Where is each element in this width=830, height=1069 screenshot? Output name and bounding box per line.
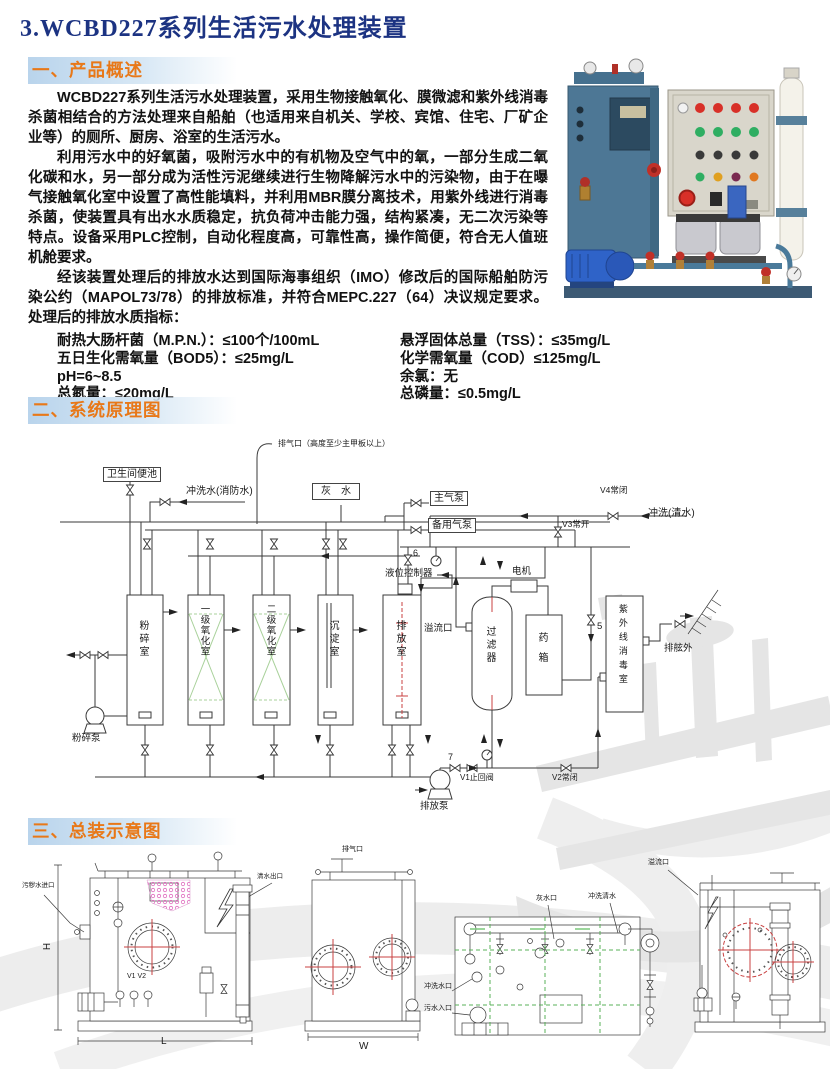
sewage-inlet-port-label: 污水入口 — [424, 1005, 452, 1013]
gray-water-label: 灰 水 — [312, 483, 360, 500]
backup-air-pump-label: 备用气泵 — [428, 518, 476, 533]
valve-5-label: 5 — [597, 622, 602, 632]
valve-v4-label: V4常闭 — [600, 486, 627, 495]
specs-right-column: 悬浮固体总量（TSS）：≤35mg/L 化学需氧量（COD）≤125mg/L 余… — [400, 333, 808, 404]
sewage-inlet-label: 污秽水进口 — [22, 882, 55, 889]
product-overview: WCBD227系列生活污水处理装置，采用生物接触氧化、膜微滤和紫外线消毒杀菌相结… — [28, 88, 548, 328]
spec-line: 五日生化需氧量（BOD5）：≤25mg/L — [57, 351, 400, 369]
assembly-drawings: H L W 污秽水进口 清水出口 V1 V2 排气口 灰水口 冲洗清水 冲洗水口… — [0, 845, 830, 1069]
section-heading-assembly: 三、总装示意图 — [28, 818, 237, 845]
uv-chamber-label: 紫外线消毒室 — [617, 604, 627, 688]
overview-paragraph: 利用污水中的好氧菌，吸附污水中的有机物及空气中的氧，一部分生成二氧化碳和水，另一… — [28, 148, 548, 268]
valve-v3-label: V3常开 — [562, 520, 589, 529]
flush-water-port-label: 冲洗水口 — [424, 983, 452, 991]
toilet-label: 卫生间便池 — [103, 467, 161, 482]
spec-line: 悬浮固体总量（TSS）：≤35mg/L — [400, 333, 808, 351]
product-photo — [550, 58, 828, 302]
vent-label: 排气口（高度至少主甲板以上） — [278, 440, 390, 449]
flush-clean-water-label: 冲洗(清水) — [648, 508, 695, 519]
assembly-linework — [0, 845, 830, 1069]
dosing-box-label: 药箱 — [536, 632, 547, 672]
overflow-port-label: 溢流口 — [424, 624, 453, 634]
section-heading-overview: 一、产品概述 — [28, 57, 237, 84]
main-air-pump-label: 主气泵 — [430, 491, 468, 506]
motor-label: 电机 — [512, 567, 531, 577]
filter-label: 过滤器 — [484, 626, 495, 665]
oxidation2-chamber-label: 二级氧化室 — [264, 604, 274, 657]
gray-water-port-label: 灰水口 — [536, 895, 557, 903]
discharge-chamber-label: 排放室 — [394, 620, 405, 659]
spec-line: pH=6~8.5 — [57, 369, 400, 387]
valve-v2-label: V2常闭 — [552, 774, 578, 783]
spec-line: 总磷量：≤0.5mg/L — [400, 386, 808, 404]
specs-left-column: 耐热大肠杆菌（M.P.N.）：≤100个/100mL 五日生化需氧量（BOD5）… — [28, 333, 400, 404]
section-heading-schematic: 二、系统原理图 — [28, 397, 237, 424]
catalog-page: { "page_title": "3.WCBD227系列生活污水处理装置", "… — [0, 0, 830, 1069]
valve-v1-label: V1止回阀 — [460, 774, 494, 783]
overview-paragraph: 经该装置处理后的排放水达到国际海事组织（IMO）修改后的国际船舶防污染公约（MA… — [28, 268, 548, 328]
page-title: 3.WCBD227系列生活污水处理装置 — [20, 8, 408, 43]
overboard-label: 排舷外 — [664, 644, 693, 654]
flush-clean-water-label: 冲洗清水 — [588, 893, 616, 901]
dimension-w-label: W — [359, 1041, 368, 1052]
overflow-port-label: 溢流口 — [648, 859, 669, 867]
discharge-quality-specs: 耐热大肠杆菌（M.P.N.）：≤100个/100mL 五日生化需氧量（BOD5）… — [28, 333, 808, 404]
dimension-h-label: H — [42, 943, 53, 950]
spec-line: 耐热大肠杆菌（M.P.N.）：≤100个/100mL — [57, 333, 400, 351]
dimension-l-label: L — [161, 1036, 167, 1047]
overview-paragraph: WCBD227系列生活污水处理装置，采用生物接触氧化、膜微滤和紫外线消毒杀菌相结… — [28, 88, 548, 148]
flush-fire-water-label: 冲洗水(消防水) — [186, 486, 253, 497]
schematic-linework — [0, 428, 830, 818]
level-controller-label: 液位控制器 — [385, 569, 433, 579]
crusher-pump-label: 粉碎泵 — [72, 734, 101, 744]
clean-water-outlet-label: 清水出口 — [257, 873, 283, 880]
vent-port-label: 排气口 — [342, 846, 363, 854]
spec-line: 余氯：无 — [400, 369, 808, 387]
system-schematic: 排气口（高度至少主甲板以上） 卫生间便池 冲洗水(消防水) 灰 水 主气泵 备用… — [0, 428, 830, 818]
valve-6-label: 6 — [413, 549, 418, 559]
crush-chamber-label: 粉碎室 — [137, 620, 148, 659]
spec-line: 化学需氧量（COD）≤125mg/L — [400, 351, 808, 369]
discharge-pump-label: 排放泵 — [420, 802, 449, 812]
settling-chamber-label: 沉淀室 — [327, 620, 338, 659]
oxidation1-chamber-label: 一级氧化室 — [198, 604, 208, 657]
valve-7-label: 7 — [448, 753, 453, 763]
v1-v2-label: V1 V2 — [127, 973, 146, 981]
